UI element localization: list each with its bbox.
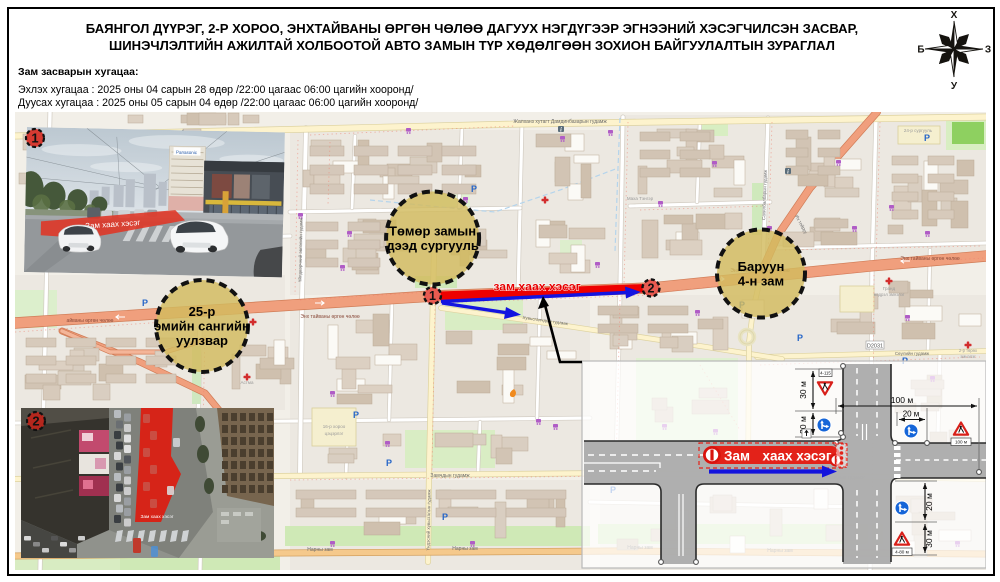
svg-text:Үндэсний хувьсгалын гудамж: Үндэсний хувьсгалын гудамж — [424, 489, 431, 550]
svg-text:айваны өргөн чөлөө: айваны өргөн чөлөө — [67, 317, 114, 324]
svg-text:эмнэлэг: эмнэлэг — [960, 354, 976, 359]
svg-text:Сөүлийн гудамж: Сөүлийн гудамж — [895, 350, 929, 356]
svg-text:Жалханз хутагт Дамдинбазарын г: Жалханз хутагт Дамдинбазарын гудамж — [513, 119, 607, 125]
svg-text:Нарны зам: Нарны зам — [452, 546, 478, 552]
svg-text:1: 1 — [429, 289, 436, 303]
svg-text:эмийн сангийн: эмийн сангийн — [154, 319, 250, 334]
svg-text:Астма: Астма — [241, 380, 254, 385]
svg-text:Үйлдвэрчний эвлэлийн гудамж: Үйлдвэрчний эвлэлийн гудамж — [296, 218, 303, 282]
svg-text:Нарны зам: Нарны зам — [307, 547, 333, 553]
svg-text:Төмөр замын: Төмөр замын — [389, 223, 476, 238]
svg-text:D2031: D2031 — [867, 344, 883, 350]
svg-text:У: У — [951, 81, 958, 92]
svg-text:зам хаах хэсэг: зам хаах хэсэг — [493, 280, 580, 294]
svg-text:4-80 м: 4-80 м — [895, 550, 909, 555]
svg-text:P: P — [924, 133, 930, 143]
svg-text:уулзвар: уулзвар — [176, 333, 228, 348]
svg-text:16-р хороо: 16-р хороо — [323, 424, 346, 429]
svg-text:Замчдын гудамж: Замчдын гудамж — [430, 473, 470, 479]
svg-text:30 м: 30 м — [798, 381, 808, 399]
svg-text:2: 2 — [32, 414, 39, 429]
svg-text:мэдрэл эмнэлэг: мэдрэл эмнэлэг — [874, 292, 905, 297]
svg-text:100 м: 100 м — [891, 395, 914, 405]
svg-text:P: P — [142, 298, 148, 308]
svg-text:Б: Б — [917, 45, 924, 56]
svg-text:З: З — [985, 45, 991, 56]
svg-text:Баруун: Баруун — [738, 259, 785, 274]
svg-text:4-115: 4-115 — [820, 371, 831, 376]
svg-text:2: 2 — [648, 282, 655, 296]
svg-text:24-р сургууль: 24-р сургууль — [904, 128, 933, 133]
svg-text:Зам: Зам — [724, 449, 750, 464]
svg-text:P: P — [386, 458, 392, 468]
svg-text:25-р: 25-р — [189, 304, 216, 319]
svg-text:Энх тайваны өргөн чөлөө: Энх тайваны өргөн чөлөө — [900, 255, 960, 262]
svg-text:цэцэрлэг: цэцэрлэг — [325, 431, 344, 436]
svg-text:P: P — [471, 184, 477, 194]
svg-text:4-н зам: 4-н зам — [738, 273, 784, 288]
svg-text:20 м: 20 м — [903, 410, 920, 419]
svg-text:1: 1 — [31, 131, 38, 146]
svg-text:Зам хаах хэсэг: Зам хаах хэсэг — [140, 514, 173, 520]
svg-text:Panasonic: Panasonic — [176, 150, 198, 155]
svg-text:P: P — [797, 333, 803, 343]
svg-text:Гранд: Гранд — [883, 286, 896, 291]
svg-text:Маха Тэнгэр: Маха Тэнгэр — [627, 196, 654, 201]
svg-text:100 м: 100 м — [955, 440, 967, 445]
svg-text:30 м: 30 м — [924, 530, 934, 548]
svg-text:2-р төрөх: 2-р төрөх — [959, 348, 978, 353]
svg-text:хаах хэсэг: хаах хэсэг — [763, 449, 832, 464]
svg-text:P: P — [442, 512, 448, 522]
svg-text:Х: Х — [951, 10, 958, 21]
svg-text:дээд сургууль: дээд сургууль — [386, 238, 479, 253]
svg-text:P: P — [353, 410, 359, 420]
svg-text:Энх тайваны өргөн чөлөө: Энх тайваны өргөн чөлөө — [300, 313, 360, 320]
svg-text:20 м: 20 м — [924, 493, 934, 511]
